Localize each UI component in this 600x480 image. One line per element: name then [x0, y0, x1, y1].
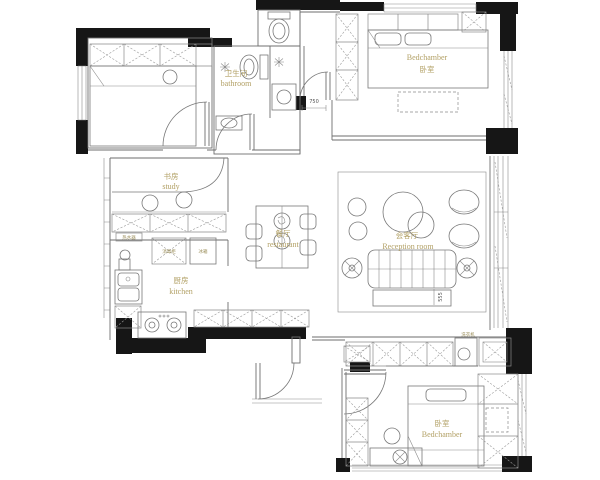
hanging-rod	[486, 408, 508, 432]
low-cabinet-row	[112, 214, 226, 232]
chair	[246, 224, 262, 239]
bedroom-bottom-furniture	[346, 374, 518, 468]
label-study-zh: 书房	[164, 171, 179, 181]
label-bedroom-bottom-en: Bedchamber	[422, 430, 463, 439]
label-bathroom-en: bathroom	[221, 79, 252, 88]
pillow	[375, 33, 401, 45]
headboard-shelf	[368, 14, 458, 30]
label-kitchen-zh: 厨房	[174, 275, 189, 285]
study-furniture	[112, 158, 226, 232]
pillow	[405, 33, 431, 45]
label-water-heater: 热水器	[122, 234, 136, 241]
laundry-row	[346, 338, 511, 366]
stove-icon	[138, 312, 186, 338]
sink-icon	[115, 270, 142, 304]
window-left-bedroom1	[78, 66, 86, 120]
window-right-bottom	[518, 374, 526, 456]
gas-meter	[120, 250, 130, 260]
label-fridge: 冰箱	[199, 248, 208, 255]
label-bedroom-top-en: Bedchamber	[407, 53, 448, 62]
door-entrance	[252, 363, 322, 403]
pillow	[163, 70, 177, 84]
window-left-study-kitchen	[104, 158, 110, 318]
bedroom1-furniture	[90, 44, 212, 146]
washbasin-icon	[216, 116, 242, 130]
chair	[142, 195, 158, 211]
cabinet-column-left	[346, 398, 368, 466]
label-bedroom-top-zh: 卧室	[420, 64, 435, 74]
floor-lamp-symbol	[457, 258, 477, 278]
washing-machine-icon	[272, 84, 296, 110]
sofa	[368, 250, 456, 288]
door-bedroom1	[163, 102, 209, 146]
chair	[176, 192, 192, 208]
window-top-bedroom	[384, 4, 476, 12]
nightstand	[462, 12, 486, 32]
small-box	[119, 259, 130, 270]
stool	[384, 428, 400, 444]
bed-top-left	[90, 66, 196, 146]
window-right-top	[504, 51, 512, 128]
dim-tv-cabinet: 555	[438, 292, 444, 302]
armchair	[449, 190, 479, 214]
armchair	[449, 224, 479, 248]
dim-corridor-door: 750	[309, 99, 319, 105]
floor-plan: 750 555	[0, 0, 600, 480]
door-bedroom-bottom	[344, 370, 386, 414]
interior-walls	[88, 10, 506, 458]
door-bedroom-top	[300, 72, 330, 100]
floor-lamp-symbol	[342, 258, 362, 278]
bay-window-right	[494, 156, 508, 328]
pillow	[426, 389, 466, 401]
stool	[348, 198, 366, 216]
washer-icon	[455, 338, 477, 366]
label-washer: 洗衣机	[461, 331, 475, 338]
toilet-alcove-icon	[268, 12, 290, 43]
coffee-table	[383, 192, 423, 232]
stool	[349, 222, 367, 240]
wardrobe-top-left	[90, 44, 212, 66]
wardrobe-column	[336, 14, 358, 100]
hallway-cabinets	[194, 310, 309, 327]
bedroom-top-furniture	[336, 12, 488, 112]
label-reception-en: Reception room	[382, 242, 434, 251]
label-dining-zh: 餐厅	[276, 229, 291, 238]
label-sterilizer: 消毒柜	[162, 248, 176, 255]
rug	[398, 92, 458, 112]
label-dining-en: restaurant	[267, 240, 299, 249]
desk	[370, 448, 422, 466]
label-study-en: study	[162, 182, 179, 191]
label-bathroom-zh: 卫生间	[225, 68, 248, 78]
label-bedroom-bottom-zh: 卧室	[435, 418, 450, 428]
label-kitchen-en: kitchen	[169, 287, 193, 296]
label-reception-zh: 会客厅	[396, 230, 419, 240]
chair	[246, 246, 262, 261]
room-labels: Bedchamber 卧室 卫生间 bathroom 书房 study 厨房 k…	[162, 53, 462, 439]
